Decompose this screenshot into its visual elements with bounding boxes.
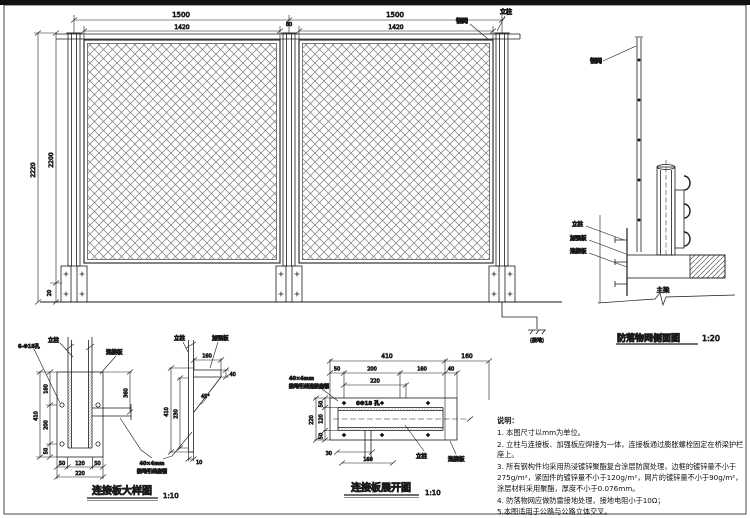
dim-dev-seg1: 50 [334,367,340,373]
base-plates [61,266,515,302]
note-item-3: 3. 所有钢构件均采用热浸镀锌聚酯复合涂层防腐处理，边框的镀锌量不小于275g/… [497,462,744,494]
dev-strap-note-1: 40×4mm [289,376,314,382]
dim-dev-seg2: 200 [367,367,377,373]
note-item-4: 4. 防落物网应做防雷接地处理，接地电阻小于10Ω； [497,496,744,507]
dim-front-wm: 120 [75,461,85,467]
grounding-wire [502,302,546,334]
dim-front-wt: 220 [75,471,85,477]
dim-side-inner: 230 [174,409,180,419]
dim-dev-side1: 50 [319,401,325,407]
side-label-post: 立柱 [572,220,584,228]
label-mesh: 钢网 [456,17,468,25]
side-view-scale: 1:20 [702,334,720,343]
dim-front-mid: 200 [44,420,50,430]
w-beam-rails [684,176,690,246]
detail-label-plate: 连接板 [106,348,123,356]
note-item-5: 5.本图适用于公路与公路立体交叉。 [497,507,744,518]
detail-side-label-stiffener: 加强板 [211,334,229,342]
detail-label-post: 立柱 [48,336,60,344]
dim-strap-drop: 360 [124,388,130,398]
drawing-sheet: (接地) 1500 1500 1420 1420 80 2220 2200 20… [0,0,750,518]
dim-dev-side3: 50 [319,433,325,439]
dev-label-post: 立柱 [416,452,428,460]
dev-title: 连接板展开图 [351,481,411,494]
side-label-mesh: 钢网 [590,57,602,65]
dev-strap-note-2: 接地引线连接扁钢 [288,383,329,390]
dim-dev-seg3: 160 [417,367,427,373]
side-mesh-edge [635,37,643,252]
side-label-plate: 连接板 [570,247,587,255]
dim-dev-seg4: 40 [448,367,454,373]
dim-angle: 45° [201,394,210,400]
dev-dims [313,359,492,466]
dim-span-left: 1500 [172,11,190,19]
bridge-beam [627,255,725,278]
dim-front-bot: 50 [44,448,50,454]
dim-dev-main: 410 [381,353,393,360]
detail-title: 连接板大样图 [92,484,152,497]
dim-panel-left: 1420 [174,24,189,31]
dim-front-total: 410 [34,411,40,421]
dim-mesh-height: 2200 [48,152,55,167]
strap-note-2: 接地引线扁钢 [136,468,167,475]
side-leaders [586,226,627,267]
dim-front-top: 160 [44,384,50,394]
dim-dev-strap-w: 30 [326,451,332,457]
dim-bottom-gap: 20 [47,290,53,296]
dim-front-wr: 50 [94,461,100,467]
dev-label-holes: 6Φ18 孔 [356,399,380,407]
mesh-panel-left [84,40,280,263]
plate-development-view: 410 160 50 200 160 40 220 220 50 120 50 … [288,353,492,498]
note-item-1: 1. 本图尺寸以mm为单位。 [497,428,744,439]
side-view: 钢网 立柱 加强板 连接 [569,37,735,344]
connection-plate-edge [600,215,627,303]
side-mesh-leader [603,46,636,61]
note-item-2: 2. 立柱与连接板、加强板应焊接为一体，连接板通过膨胀螺栓固定在桥梁护栏座上。 [497,440,744,462]
dim-front-wl: 50 [59,461,65,467]
dev-leaders [318,386,456,454]
dev-plate [330,398,473,460]
detail-scale: 1:10 [163,492,179,500]
label-post: 立柱 [500,8,512,16]
break-line [598,293,735,305]
guardrail-post-pipe [657,160,684,257]
detail-label-holes: 6-Φ18孔 [18,343,40,350]
plate-detail-view: 410 160 200 50 50 120 50 220 360 立柱 连接板 … [18,334,236,501]
dim-thickness: 10 [196,460,202,466]
dim-dev-strap-len: 160 [363,457,373,463]
elevation-view: (接地) 1500 1500 1420 1420 80 2220 2200 20… [30,8,562,344]
top-rail [56,34,520,39]
side-view-title: 防落物网侧面图 [617,332,680,344]
dim-span-right: 1500 [386,11,404,19]
dim-dev-220: 220 [370,379,380,385]
notes-block: 说明： 1. 本图尺寸以mm为单位。 2. 立柱与连接板、加强板应焊接为一体，连… [497,416,744,518]
dev-scale: 1:10 [425,489,441,497]
side-label-stiffener: 加强板 [569,234,587,242]
side-label-beam: 主梁 [657,285,671,294]
dim-panel-right: 1420 [388,24,403,31]
strap-note-1: 40×4mm [139,461,164,467]
mesh-panel-right [299,40,493,263]
notes-title: 说明： [497,416,744,427]
ground-label: (接地) [530,337,544,344]
dim-total-height: 2220 [30,162,37,177]
dim-dev-side-total: 220 [309,415,315,425]
detail-side-label-post: 立柱 [174,334,186,342]
strap-leader [120,418,152,458]
dev-label-plate: 连接板 [448,455,465,463]
dim-side-total: 410 [164,407,170,417]
dim-flange-len: 160 [202,354,212,360]
dim-flange-w: 40 [230,372,236,378]
dim-dev-side2: 120 [319,414,325,424]
dim-post-width: 80 [286,22,292,28]
dim-dev-flange: 160 [461,353,473,360]
